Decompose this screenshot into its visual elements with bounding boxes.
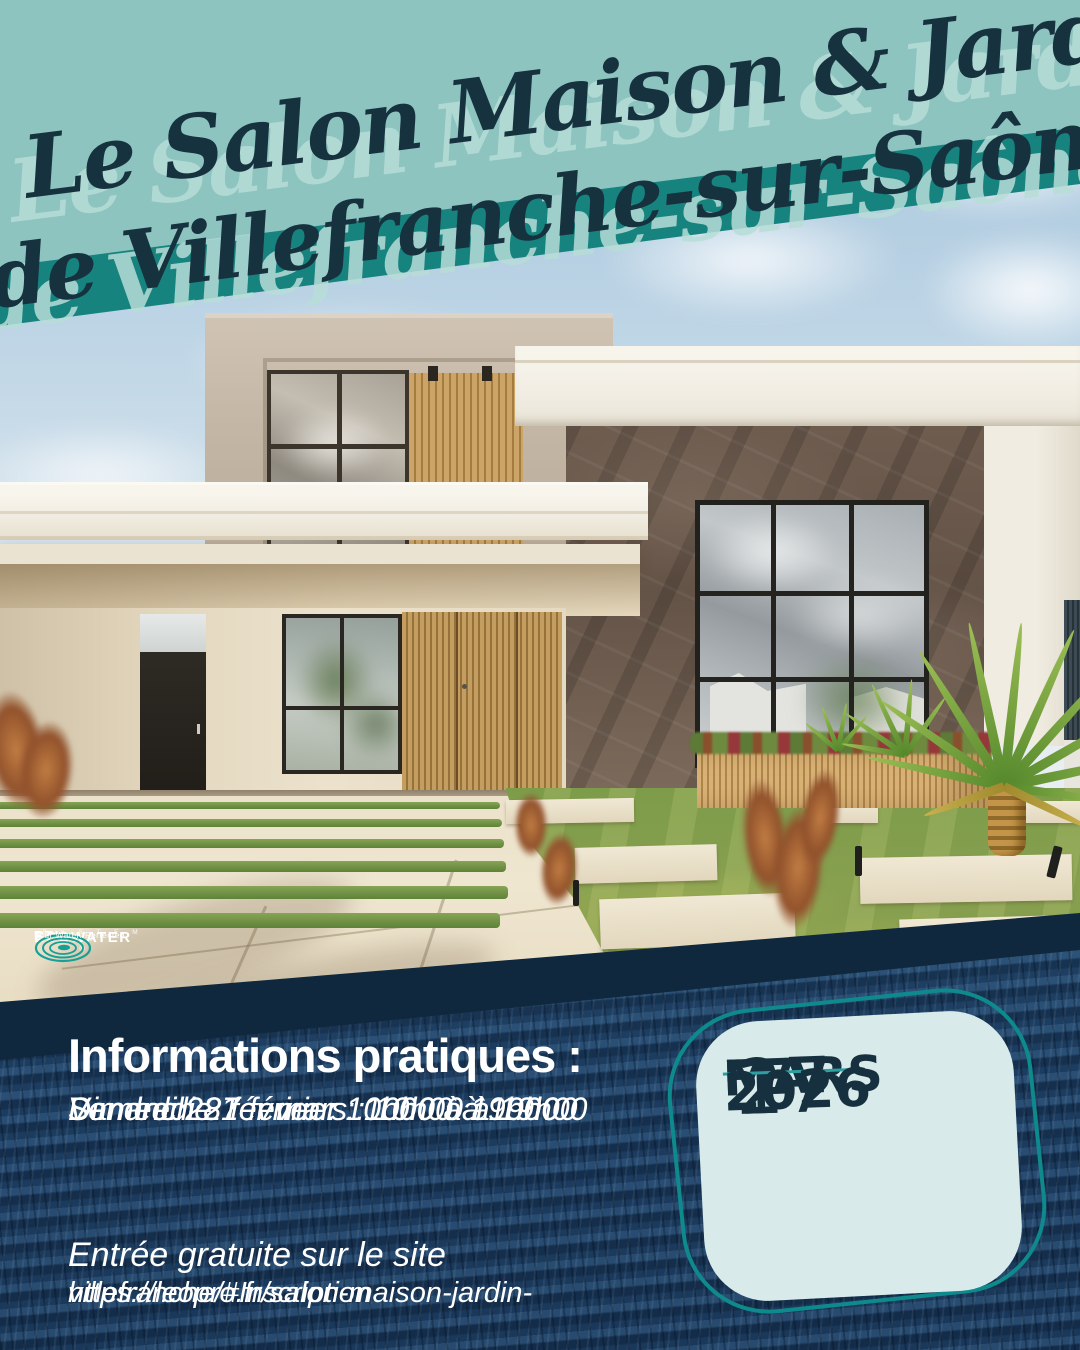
carport-canopy — [0, 482, 648, 540]
window-mullion — [771, 505, 776, 763]
grass-strip — [0, 886, 508, 899]
fascia-groove — [515, 360, 1080, 363]
building-reflection — [710, 673, 806, 733]
white-fascia-band — [515, 346, 1080, 426]
garden-light — [573, 880, 579, 906]
badge-year: 2026 — [723, 1061, 872, 1119]
ecowater-tagline: Your Water. Perfected. — [34, 930, 128, 940]
event-poster: Le Salon Maison & Jardin de Villefranche… — [0, 0, 1080, 1350]
stepping-slab — [860, 854, 1073, 904]
door-seam — [456, 612, 458, 798]
grass-strip — [0, 861, 506, 872]
window-mullion — [271, 444, 405, 449]
canopy-groove — [0, 511, 648, 514]
door-transom — [140, 614, 206, 652]
door-handle — [462, 684, 467, 689]
window-mullion — [700, 677, 924, 682]
ground-floor-wall — [0, 608, 566, 796]
window-reflection — [279, 408, 389, 478]
window-mullion — [700, 591, 924, 596]
tree-reflection — [341, 688, 402, 758]
window-mullion — [340, 618, 344, 770]
door-handle — [197, 724, 200, 734]
window-mullion — [849, 505, 854, 763]
grass-strip — [0, 802, 500, 809]
red-grass-plant — [514, 792, 548, 858]
canopy-lower-fascia — [0, 544, 640, 564]
grass-strip — [0, 913, 500, 928]
garden-light — [855, 846, 862, 876]
grass-strip — [0, 839, 504, 848]
registration-url-line2[interactable]: villefranche/#Inscription — [68, 1276, 371, 1310]
free-entry-text: Entrée gratuite sur le site — [68, 1236, 668, 1275]
ground-window — [282, 614, 402, 774]
info-heading: Informations pratiques : — [68, 1028, 668, 1083]
wood-planter — [697, 750, 992, 808]
soffit-light — [428, 366, 438, 381]
stepping-slab — [575, 844, 718, 884]
wood-slat-door — [402, 612, 562, 798]
window-reflection — [790, 575, 929, 655]
door-seam — [516, 612, 518, 798]
schedule-line: Dimanche 1er mars : 10h00 à 19h00 — [68, 1088, 587, 1131]
soffit-light — [482, 366, 492, 381]
window-mullion — [286, 706, 398, 710]
grass-strip — [0, 819, 502, 827]
entry-door — [140, 652, 206, 800]
